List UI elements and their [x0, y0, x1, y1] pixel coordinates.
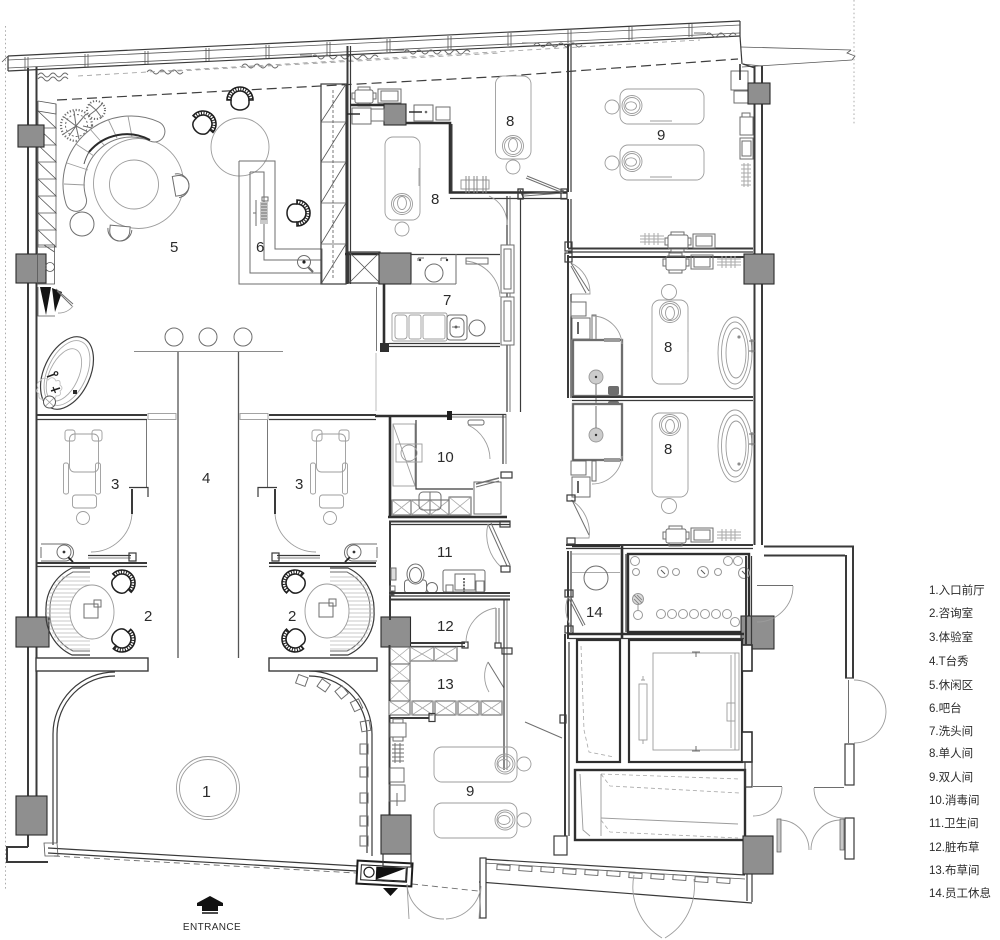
svg-text:12: 12: [437, 618, 454, 635]
svg-text:4.T台秀: 4.T台秀: [929, 654, 969, 668]
svg-text:ENTRANCE: ENTRANCE: [183, 922, 241, 933]
svg-text:8: 8: [664, 339, 672, 356]
svg-text:2.咨询室: 2.咨询室: [929, 606, 973, 620]
svg-text:3.体验室: 3.体验室: [929, 630, 973, 644]
svg-text:4: 4: [202, 470, 210, 487]
svg-text:1.入口前厅: 1.入口前厅: [929, 583, 985, 597]
svg-text:1: 1: [202, 784, 211, 801]
svg-text:11: 11: [437, 544, 453, 561]
svg-text:9: 9: [657, 127, 665, 144]
svg-text:8: 8: [506, 113, 514, 130]
svg-text:5.休闲区: 5.休闲区: [929, 678, 973, 692]
svg-text:3: 3: [295, 476, 303, 493]
svg-text:5: 5: [170, 239, 178, 256]
svg-text:6: 6: [256, 239, 264, 256]
svg-text:7: 7: [443, 292, 451, 309]
svg-text:14: 14: [586, 604, 603, 621]
svg-text:13.布草间: 13.布草间: [929, 864, 980, 877]
svg-text:10: 10: [437, 449, 454, 466]
svg-text:2: 2: [288, 608, 296, 625]
svg-text:14.员工休息: 14.员工休息: [929, 886, 991, 900]
svg-text:2: 2: [144, 608, 152, 625]
svg-text:6.吧台: 6.吧台: [929, 701, 962, 715]
svg-text:9.双人间: 9.双人间: [929, 771, 973, 784]
svg-text:10.消毒间: 10.消毒间: [929, 793, 980, 807]
svg-text:7.洗头间: 7.洗头间: [929, 725, 973, 738]
svg-text:3: 3: [111, 476, 119, 493]
svg-text:11.卫生间: 11.卫生间: [929, 816, 979, 830]
svg-text:13: 13: [437, 676, 454, 693]
svg-text:8: 8: [664, 441, 672, 458]
svg-text:9: 9: [466, 783, 474, 800]
svg-text:12.脏布草: 12.脏布草: [929, 840, 980, 854]
svg-text:8.单人间: 8.单人间: [929, 747, 973, 760]
svg-text:8: 8: [431, 191, 439, 208]
